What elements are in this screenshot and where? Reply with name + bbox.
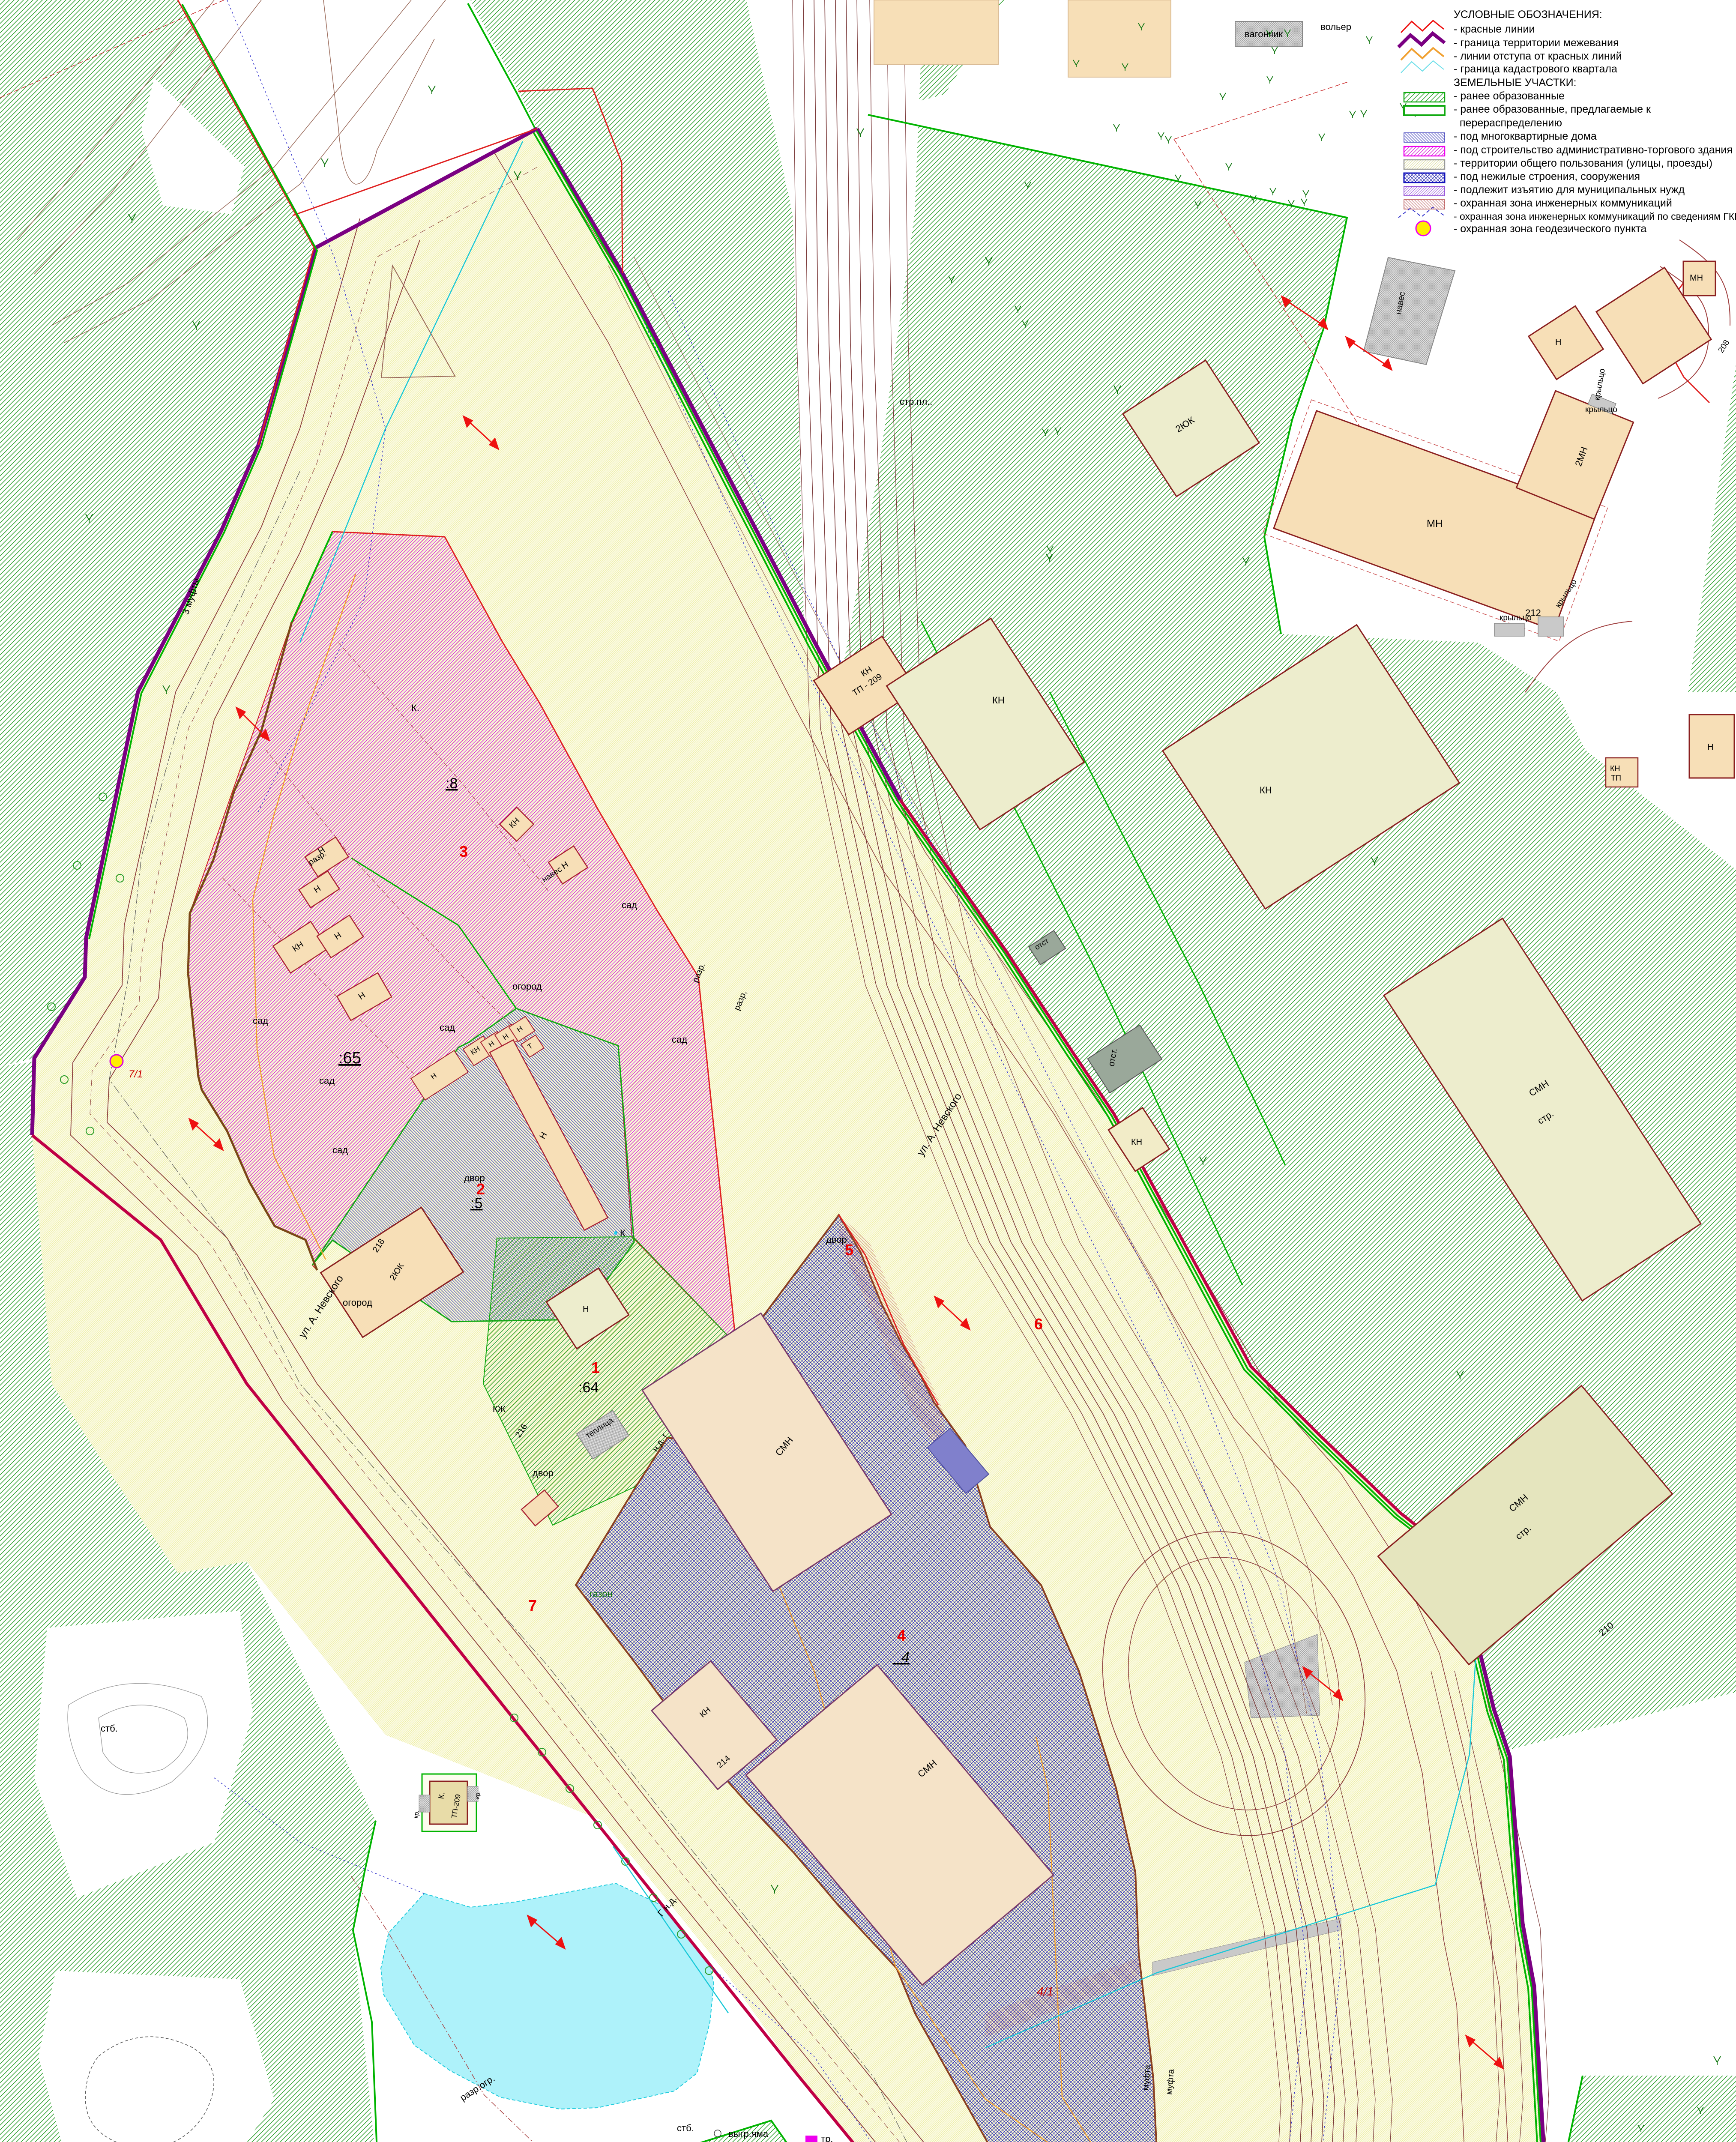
svg-text:- красные линии: - красные линии [1454, 23, 1535, 35]
svg-text:7: 7 [528, 1597, 537, 1614]
svg-text:Н: Н [583, 1304, 589, 1314]
svg-text:КН: КН [992, 695, 1005, 706]
svg-text:кр.: кр. [473, 1790, 482, 1800]
svg-text::65: :65 [338, 1049, 361, 1067]
svg-text:вагончик: вагончик [1245, 29, 1283, 39]
svg-text:кр.: кр. [412, 1810, 421, 1819]
svg-text:КН: КН [1131, 1137, 1142, 1147]
svg-text:выгр.яма: выгр.яма [728, 2128, 769, 2139]
svg-text:сад: сад [440, 1022, 455, 1033]
svg-text:- под многоквартирные дома: - под многоквартирные дома [1454, 130, 1597, 142]
svg-text:- охранная зона геодезического: - охранная зона геодезического пункта [1454, 223, 1646, 235]
svg-text:- линии отступа от красных лин: - линии отступа от красных линий [1454, 50, 1622, 62]
svg-text::8: :8 [446, 775, 458, 792]
svg-text:ЗЕМЕЛЬНЫЕ УЧАСТКИ:: ЗЕМЕЛЬНЫЕ УЧАСТКИ: [1454, 77, 1577, 89]
svg-text:КЖ: КЖ [493, 1405, 506, 1414]
svg-text::64: :64 [578, 1379, 599, 1396]
svg-text:сад: сад [672, 1034, 687, 1045]
svg-text:Н: Н [1555, 338, 1561, 347]
svg-text:КН: КН [1610, 764, 1620, 773]
svg-text:газон: газон [590, 1589, 613, 1599]
svg-text:МН: МН [1427, 518, 1443, 530]
svg-text:стб.: стб. [677, 2123, 694, 2133]
svg-text:двор: двор [533, 1468, 554, 1478]
svg-text:сад: сад [253, 1015, 268, 1026]
svg-text:двор: двор [464, 1173, 485, 1183]
svg-text:сад: сад [319, 1075, 335, 1086]
svg-text:_4: _4 [892, 1649, 910, 1666]
svg-text:МН: МН [1690, 273, 1703, 283]
svg-text:- под строительство администра: - под строительство административно-торг… [1454, 144, 1733, 156]
svg-text:сад: сад [622, 900, 637, 910]
svg-text:4: 4 [897, 1627, 906, 1644]
svg-text:К: К [620, 1228, 626, 1239]
svg-text:7/1: 7/1 [129, 1068, 143, 1080]
svg-text:стб.: стб. [101, 1723, 118, 1734]
svg-text:вольер: вольер [1320, 21, 1351, 32]
svg-text:стр.пл..: стр.пл.. [900, 396, 932, 407]
svg-text:крыльцо: крыльцо [1585, 405, 1617, 414]
svg-text:- граница территории межевания: - граница территории межевания [1454, 37, 1619, 49]
svg-text:- граница кадастрового квартал: - граница кадастрового квартала [1454, 63, 1617, 75]
svg-text:КН: КН [1260, 785, 1272, 796]
svg-text:огород: огород [343, 1297, 372, 1308]
svg-text::5: :5 [470, 1195, 482, 1212]
svg-text:6: 6 [1034, 1315, 1043, 1333]
svg-text:- подлежит изъятию для муницип: - подлежит изъятию для муниципальных нуж… [1454, 184, 1685, 196]
svg-text:УСЛОВНЫЕ ОБОЗНАЧЕНИЯ:: УСЛОВНЫЕ ОБОЗНАЧЕНИЯ: [1454, 9, 1602, 21]
svg-text:- охранная зона инженерных ком: - охранная зона инженерных коммуникаций … [1454, 211, 1736, 222]
svg-text:4/1: 4/1 [1037, 1985, 1054, 1998]
svg-text:- территории общего пользовани: - территории общего пользования (улицы, … [1454, 157, 1712, 169]
svg-text:тр.: тр. [821, 2133, 833, 2142]
svg-text:крыльцо: крыльцо [1500, 613, 1532, 622]
svg-text:- ранее образованные: - ранее образованные [1454, 90, 1565, 102]
svg-text:двор: двор [826, 1234, 847, 1245]
svg-text:1: 1 [591, 1359, 600, 1376]
svg-text:Н: Н [1707, 742, 1713, 752]
svg-text:К.: К. [411, 703, 419, 713]
svg-text:перераспределению: перераспределению [1460, 117, 1562, 129]
svg-text:- ранее образованные, предлага: - ранее образованные, предлагаемые к [1454, 103, 1651, 115]
svg-text:- охранная зона инженерных ком: - охранная зона инженерных коммуникаций [1454, 197, 1672, 209]
svg-text:огород: огород [512, 981, 542, 992]
svg-text:- под нежилые строения, сооруж: - под нежилые строения, сооружения [1454, 171, 1640, 182]
svg-text:3: 3 [459, 843, 468, 860]
svg-text:ТП: ТП [1611, 774, 1621, 782]
svg-text:сад: сад [332, 1145, 348, 1155]
